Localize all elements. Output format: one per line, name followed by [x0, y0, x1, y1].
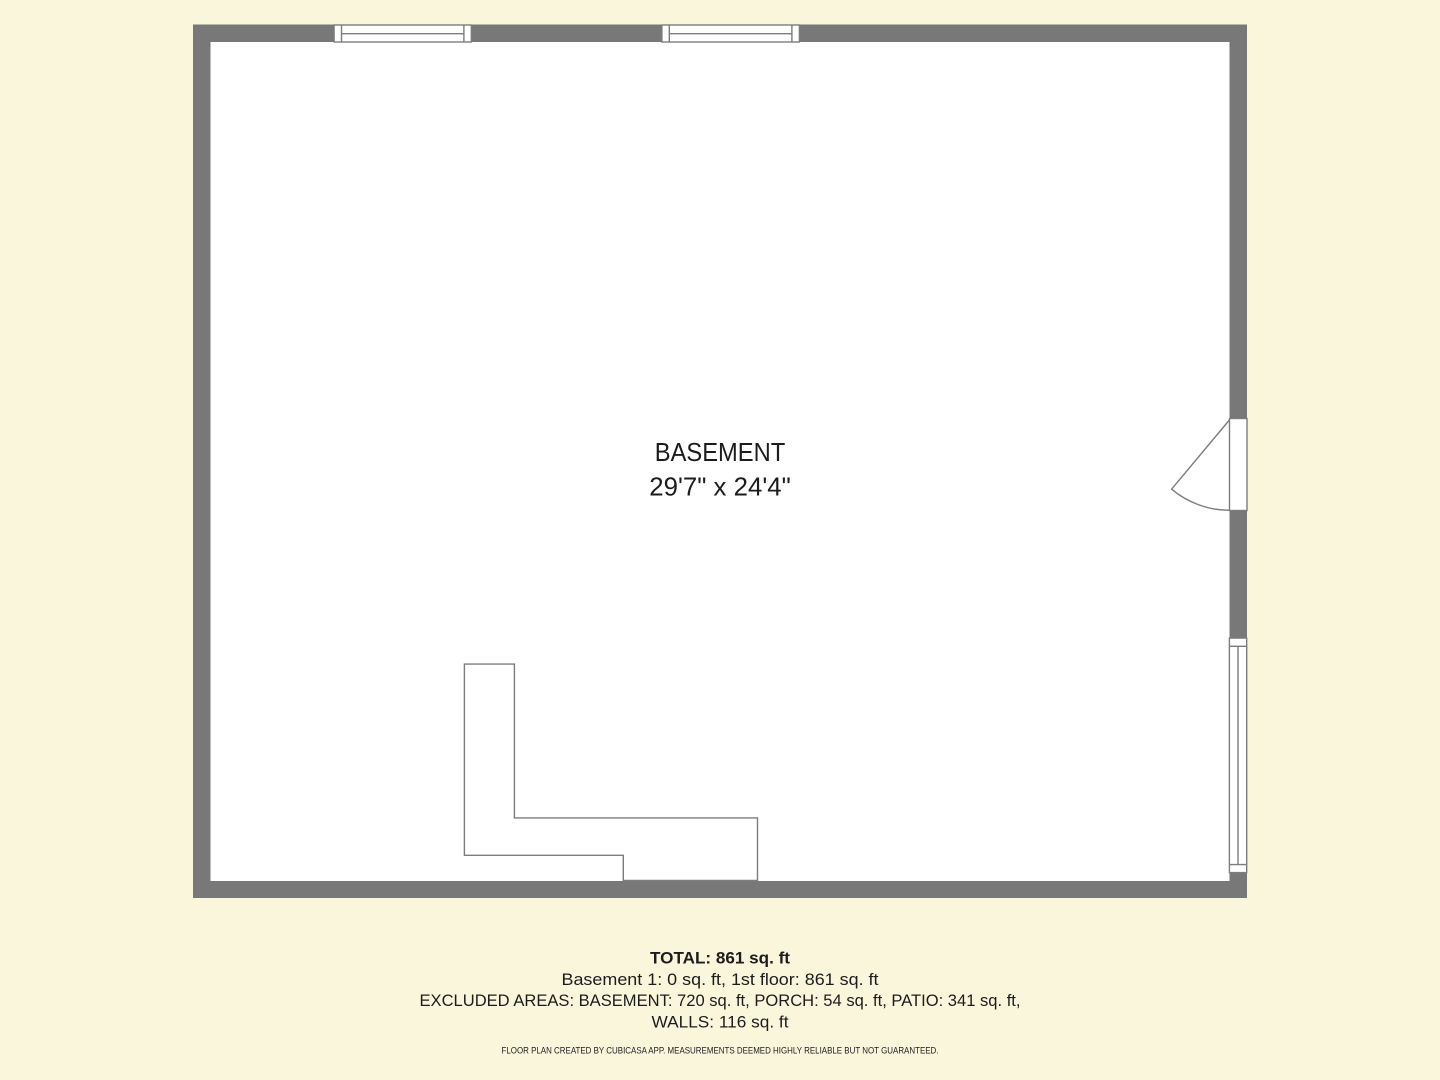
svg-text:FLOOR PLAN CREATED BY CUBICASA: FLOOR PLAN CREATED BY CUBICASA APP. MEAS… [502, 1046, 939, 1056]
svg-text:TOTAL: 861 sq. ft: TOTAL: 861 sq. ft [650, 950, 791, 968]
svg-text:Basement 1: 0 sq. ft, 1st floo: Basement 1: 0 sq. ft, 1st floor: 861 sq.… [562, 971, 879, 989]
svg-text:BASEMENT: BASEMENT [655, 437, 786, 467]
svg-text:29'7" x 24'4": 29'7" x 24'4" [649, 472, 791, 502]
svg-text:WALLS: 116 sq. ft: WALLS: 116 sq. ft [652, 1014, 789, 1032]
svg-text:EXCLUDED AREAS: BASEMENT: 720: EXCLUDED AREAS: BASEMENT: 720 sq. ft, PO… [420, 992, 1021, 1010]
